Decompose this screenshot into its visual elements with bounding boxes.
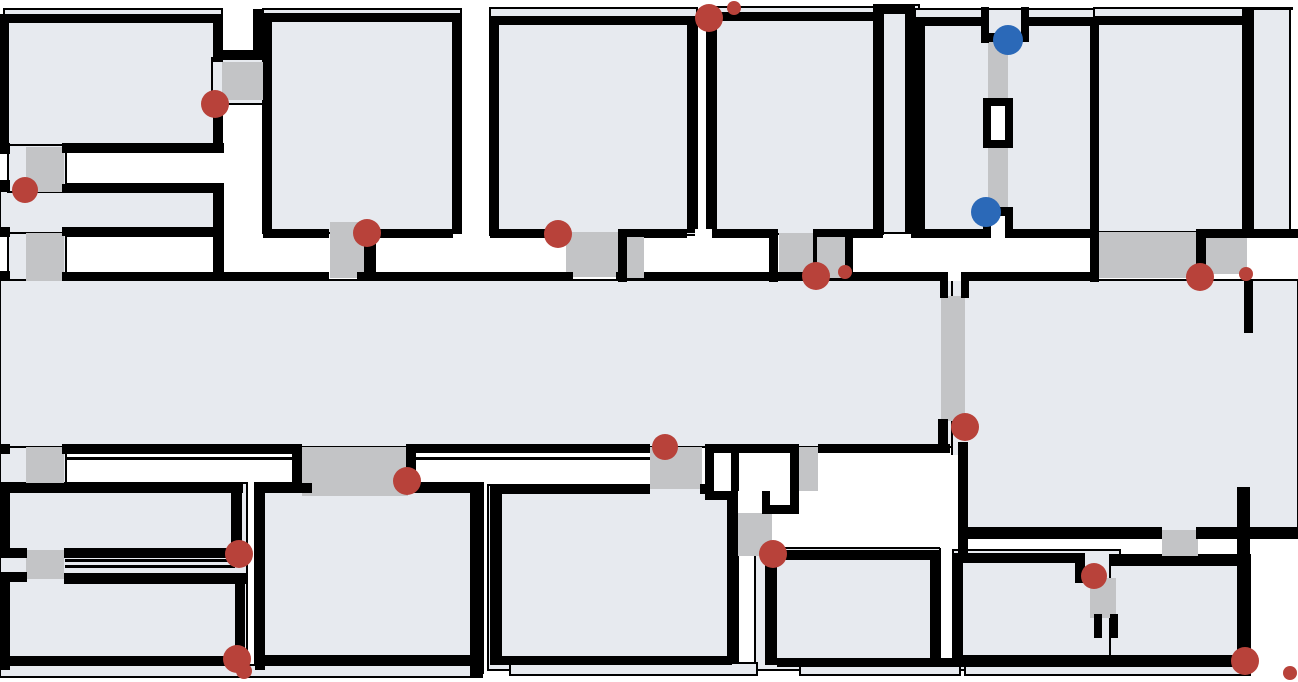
wall-segment	[953, 553, 963, 663]
door-marker-red-icon	[759, 540, 787, 568]
room-region	[255, 483, 483, 673]
doorway	[566, 232, 618, 277]
wall-segment	[1200, 229, 1247, 238]
room-region	[0, 280, 954, 447]
wall-segment	[1242, 7, 1252, 238]
wall-segment	[0, 548, 27, 558]
wall-segment	[762, 505, 799, 514]
wall-segment	[0, 143, 10, 154]
wall-segment	[490, 16, 691, 25]
door-marker-red-icon	[201, 90, 229, 118]
wall-segment	[0, 14, 9, 146]
wall-segment	[911, 229, 990, 238]
door-marker-red-icon	[1231, 647, 1259, 675]
doorway	[799, 447, 818, 491]
wall-segment	[0, 656, 244, 666]
doorway	[26, 447, 64, 487]
wall-segment	[618, 229, 687, 238]
doorway	[1162, 530, 1198, 558]
wall-segment	[470, 486, 482, 676]
room-region	[1110, 555, 1250, 670]
wall-segment	[490, 484, 502, 665]
wall-segment	[64, 574, 246, 584]
door-marker-red-icon	[727, 1, 741, 15]
room-region	[1253, 8, 1290, 230]
wall-segment	[687, 16, 697, 233]
wall-segment	[62, 184, 224, 193]
wall-segment	[1244, 280, 1253, 333]
door-marker-blue-icon	[971, 197, 1001, 227]
wall-segment	[960, 527, 1162, 537]
wall-segment	[953, 655, 1120, 667]
wall-segment	[490, 484, 650, 494]
thin-outline	[65, 457, 303, 460]
door-marker-red-icon	[951, 413, 979, 441]
wall-segment	[961, 281, 969, 298]
wall-segment	[0, 483, 243, 493]
door-marker-red-icon	[1081, 563, 1107, 589]
wall-segment	[707, 12, 717, 229]
room-region	[488, 485, 738, 670]
wall-segment	[769, 229, 778, 282]
wall-segment	[874, 5, 915, 14]
thin-outline	[1246, 7, 1293, 10]
wall-segment	[616, 272, 948, 281]
wall-segment	[1110, 556, 1243, 566]
door-marker-red-icon	[1186, 263, 1214, 291]
doorway	[1099, 232, 1196, 278]
wall-segment	[263, 13, 462, 22]
door-marker-red-icon	[12, 177, 38, 203]
wall-segment	[256, 655, 482, 666]
wall-segment	[938, 419, 948, 453]
wall-segment	[818, 444, 950, 453]
door-marker-red-icon	[353, 219, 381, 247]
door-marker-red-icon	[236, 663, 252, 679]
wall-segment	[263, 229, 329, 238]
wall-segment	[1247, 229, 1298, 238]
door-marker-blue-icon	[993, 25, 1023, 55]
wall-segment	[777, 658, 960, 667]
doorway	[222, 62, 263, 100]
wall-segment	[1004, 229, 1092, 238]
room-region	[1094, 8, 1246, 232]
wall-segment	[406, 444, 650, 453]
wall-segment	[213, 184, 224, 281]
floorplan-canvas	[0, 0, 1298, 682]
wall-segment	[62, 272, 329, 281]
door-marker-red-icon	[225, 540, 253, 568]
wall-segment	[0, 180, 10, 192]
wall-segment	[1110, 655, 1250, 667]
wall-segment	[0, 14, 223, 23]
wall-segment	[727, 484, 738, 664]
wall-segment	[0, 574, 10, 670]
wall-segment	[1094, 16, 1246, 25]
doorway	[302, 447, 408, 496]
wall-segment	[915, 17, 987, 26]
wall-segment	[0, 227, 10, 237]
wall-segment	[255, 483, 265, 670]
doorway	[26, 550, 64, 579]
wall-segment	[64, 548, 242, 558]
white-gap	[627, 238, 769, 272]
wall-segment	[1090, 25, 1099, 282]
thin-outline	[65, 565, 235, 568]
doorway-top	[627, 237, 644, 278]
white-gap	[738, 491, 762, 513]
doorway	[941, 296, 965, 421]
doorway	[26, 233, 64, 281]
white-gap	[739, 453, 790, 491]
door-marker-red-icon	[1239, 267, 1253, 281]
wall-segment	[62, 444, 302, 454]
room-region	[490, 8, 697, 235]
wall-segment	[357, 272, 573, 281]
wall-segment	[1094, 614, 1102, 638]
wall-segment	[961, 272, 1097, 281]
door-marker-red-icon	[1283, 666, 1297, 680]
wall-segment	[0, 444, 10, 454]
wall-segment	[790, 444, 799, 514]
wall-segment	[1110, 614, 1118, 638]
wall-segment	[770, 550, 940, 560]
wall-segment	[905, 5, 915, 233]
white-gap	[940, 455, 958, 548]
door-marker-red-icon	[544, 220, 572, 248]
white-gap	[822, 238, 1090, 272]
wall-segment	[915, 17, 925, 232]
thin-outline	[412, 457, 652, 460]
wall-segment	[490, 16, 499, 233]
door-marker-red-icon	[802, 262, 830, 290]
wall-segment	[0, 271, 10, 281]
door-marker-red-icon	[838, 265, 852, 279]
room-region	[755, 548, 940, 670]
wall-segment	[452, 13, 462, 233]
door-marker-red-icon	[695, 4, 723, 32]
wall-segment	[958, 442, 968, 562]
door-marker-red-icon	[393, 467, 421, 495]
wall-segment	[1025, 17, 1095, 26]
wall-segment	[940, 281, 948, 298]
wall-segment	[953, 553, 1083, 563]
white-gap	[714, 453, 731, 491]
wall-segment	[874, 5, 884, 233]
room-region	[263, 9, 461, 233]
wall-segment	[930, 550, 940, 660]
wall-segment	[1237, 487, 1250, 667]
wall-segment	[0, 483, 10, 555]
wall-segment	[62, 227, 224, 236]
doorway	[1206, 237, 1247, 274]
wall-segment	[710, 229, 778, 238]
thin-outline	[65, 559, 235, 562]
floorplan-map	[0, 0, 1298, 682]
wall-segment	[253, 9, 263, 59]
room-region	[707, 7, 883, 234]
wall-segment	[498, 656, 732, 665]
wall-segment	[62, 143, 224, 153]
wall-segment	[705, 444, 799, 453]
wall-segment	[263, 13, 272, 233]
white-gap	[991, 106, 1005, 140]
door-marker-red-icon	[652, 434, 678, 460]
room-region	[4, 9, 222, 146]
